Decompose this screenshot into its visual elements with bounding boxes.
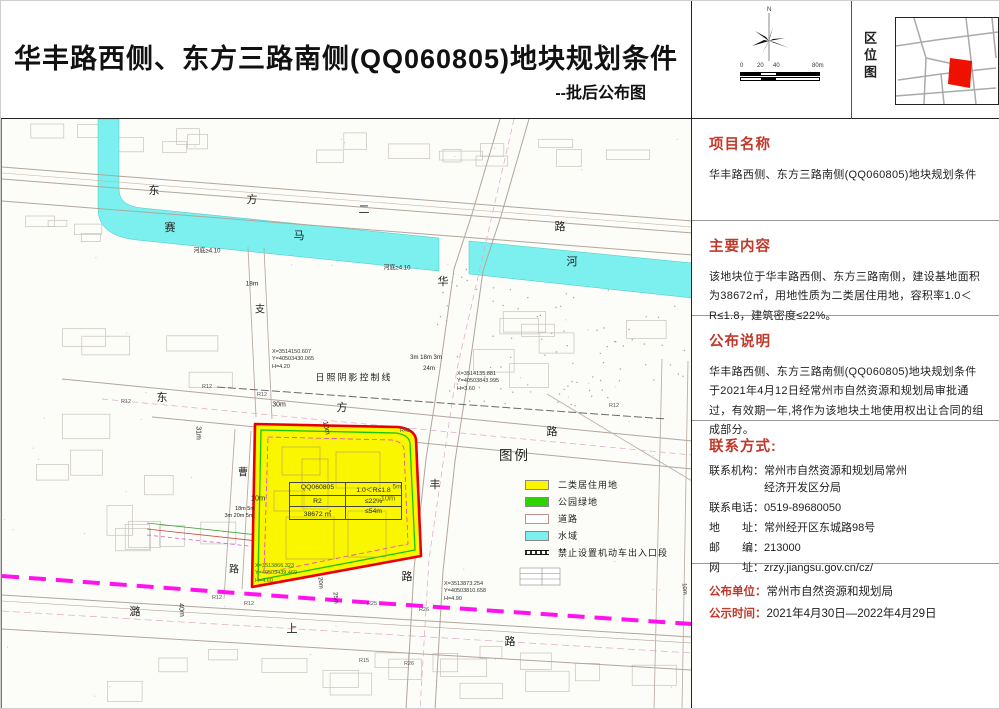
project-name-text: 华丰路西侧、东方三路南侧(QQ060805)地块规划条件 [709,166,987,185]
legend-row: 水域 [499,527,689,544]
contact-rows: 联系机构：常州市自然资源和规划局常州 经济开发区分局联系电话：0519-8968… [709,463,987,576]
parcel-table-row: 38672 ㎡≤54m [290,506,401,519]
contact-row: 邮 编：213000 [709,540,987,557]
contact-label: 地 址： [709,520,764,537]
sidebar: 项目名称 华丰路西侧、东方三路南侧(QQ060805)地块规划条件 主要内容 该… [691,119,1000,709]
page-title: 华丰路西侧、东方三路南侧(QQ060805)地块规划条件 [1,37,691,76]
contact-value: 常州市自然资源和规划局常州 经济开发区分局 [764,463,907,496]
contact-label: 邮 编： [709,540,764,557]
legend-swatch-noaccess [525,550,549,555]
parcel-table-row: QQ0608051.0＜R≤1.8 [290,483,401,495]
parcel-table-cell: ≤54m [346,507,401,519]
contact-row: 地 址：常州经开区东城路98号 [709,520,987,537]
header-right: N 0204080m [691,1,1000,119]
parcel-table-cell: 1.0＜R≤1.8 [346,483,401,495]
publisher-value: 常州市自然资源和规划局 [767,582,894,604]
map-drawing [2,119,691,709]
utility-lines [147,523,258,547]
legend-swatch-water [525,531,549,541]
legend-label: 二类居住用地 [558,478,618,491]
scale-tick-label: 40 [773,63,780,69]
legend-title: 图例 [499,444,689,464]
period-row: 公示时间： 2021年4月30日—2022年4月29日 [709,604,987,626]
contact-value: 常州经开区东城路98号 [764,520,875,537]
contact-value: 213000 [764,540,801,557]
contact-value: 0519-89680050 [764,500,841,517]
legend-row: 二类居住用地 [499,476,689,493]
sunshine-control-line [217,387,667,419]
site-marker [948,58,972,88]
contact-label: 联系电话： [709,500,764,517]
legend-swatch-green [525,497,549,507]
legend-row: 禁止设置机动车出入口段 [499,544,689,561]
river-canal [98,119,439,271]
page-subtitle: --批后公布图 [555,79,646,103]
road-bottom [2,595,691,670]
section-heading: 联系方式: [709,435,987,456]
legend-label: 禁止设置机动车出入口段 [558,546,668,559]
legend-swatch-road [525,514,549,524]
legend-row: 道路 [499,510,689,527]
scale-tick-label: 20 [757,63,764,69]
legend-swatch-residential [525,480,549,490]
parcel-table-row: R2≤22% [290,495,401,505]
section-main-content: 主要内容 该地块位于华丰路西侧、东方三路南侧，建设基地面积为38672㎡，用地性… [692,221,1000,316]
period-value: 2021年4月30日—2022年4月29日 [767,604,937,626]
contact-label: 联系机构： [709,463,764,496]
parcel-table-cell: R2 [290,496,346,505]
contact-row: 联系电话：0519-89680050 [709,500,987,517]
section-contact: 联系方式: 联系机构：常州市自然资源和规划局常州 经济开发区分局联系电话：051… [692,421,1000,564]
corridor-line [2,576,691,624]
north-label: N [767,7,771,13]
compass-box: N 0204080m [692,1,852,119]
legend: 图例 二类居住用地公园绿地道路水域禁止设置机动车出入口段 [499,444,689,561]
legend-label: 道路 [558,512,578,525]
section-publisher: 公布单位： 常州市自然资源和规划局 公示时间： 2021年4月30日—2022年… [692,564,1000,709]
location-map-label: 区位图 [860,31,879,82]
period-label: 公示时间： [709,604,767,626]
scale-tick-label: 80m [812,63,824,69]
parcel-table-cell: QQ060805 [290,483,346,495]
mini-table [520,568,560,585]
section-project-name: 项目名称 华丰路西侧、东方三路南侧(QQ060805)地块规划条件 [692,119,1000,221]
location-map-streets [896,18,998,104]
plan-map: 东方二路赛马河东方路华丰路支曹路潞上路河底≥4.10河底≥4.1018m30m3… [1,119,691,709]
legend-label: 公园绿地 [558,495,598,508]
publisher-row: 公布单位： 常州市自然资源和规划局 [709,582,987,604]
compass-icon: N [692,1,852,119]
river-east [469,241,691,298]
header: 华丰路西侧、东方三路南侧(QQ060805)地块规划条件 --批后公布图 [1,1,691,119]
section-heading: 公布说明 [709,330,987,351]
scale-bar [740,72,820,81]
section-heading: 主要内容 [709,235,987,256]
section-heading: 项目名称 [709,133,987,154]
location-map [895,17,999,105]
parcel-table-cell: ≤22% [346,496,401,505]
scale-tick-label: 0 [740,63,743,69]
planning-notice-page: 华丰路西侧、东方三路南侧(QQ060805)地块规划条件 --批后公布图 N 0… [0,0,1000,709]
legend-row: 公园绿地 [499,493,689,510]
parcel-data-table: QQ0608051.0＜R≤1.8R2≤22%38672 ㎡≤54m [289,482,402,520]
publisher-label: 公布单位： [709,582,767,604]
section-notice: 公布说明 华丰路西侧、东方三路南侧(QQ060805)地块规划条件 于2021年… [692,316,1000,421]
legend-label: 水域 [558,529,578,542]
contact-row: 联系机构：常州市自然资源和规划局常州 经济开发区分局 [709,463,987,496]
parcel-table-cell: 38672 ㎡ [290,507,346,519]
